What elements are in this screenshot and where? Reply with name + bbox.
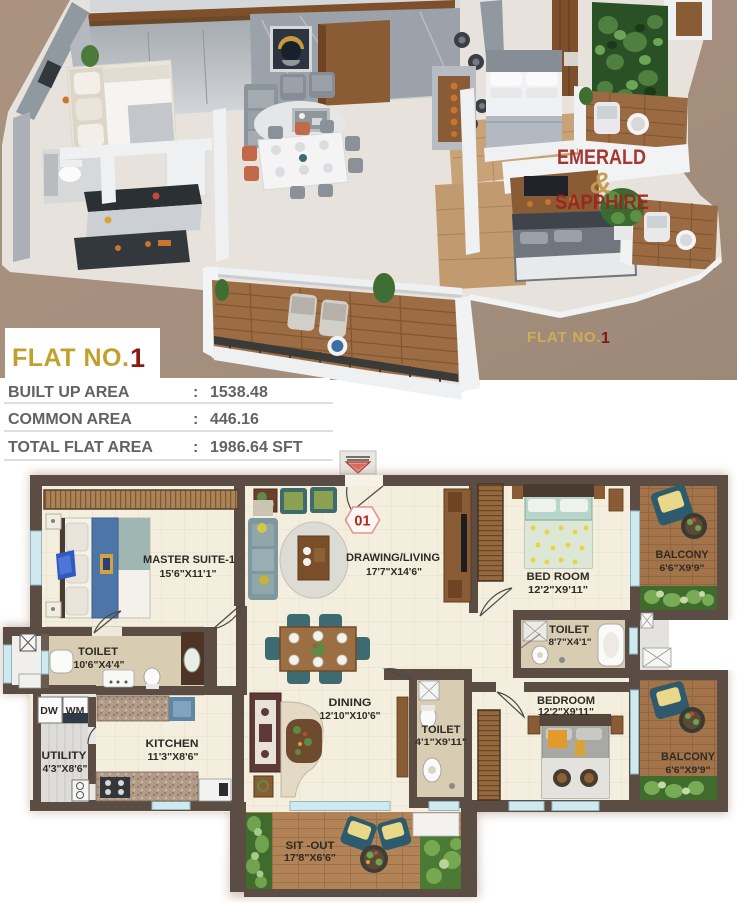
svg-text:15'6"X11'1": 15'6"X11'1": [160, 569, 217, 580]
svg-text:COMMON AREA: COMMON AREA: [8, 411, 132, 428]
svg-text:FLAT NO.: FLAT NO.: [527, 329, 601, 346]
svg-text:6'6"X9'9": 6'6"X9'9": [666, 765, 711, 776]
svg-text:DW: DW: [40, 705, 58, 717]
svg-text:BALCONY: BALCONY: [661, 751, 715, 763]
svg-text:4'1"X9'11": 4'1"X9'11": [415, 737, 467, 748]
svg-text:EMERALD: EMERALD: [557, 146, 646, 169]
svg-text:WM: WM: [66, 705, 85, 717]
svg-text:MASTER SUITE-1: MASTER SUITE-1: [143, 554, 235, 566]
svg-text:1986.64 SFT: 1986.64 SFT: [210, 439, 303, 456]
svg-text:BUILT UP AREA: BUILT UP AREA: [8, 384, 130, 401]
svg-text:KITCHEN: KITCHEN: [146, 738, 199, 750]
svg-text:8'7"X4'1": 8'7"X4'1": [549, 637, 592, 648]
svg-text:12'2"X9'11": 12'2"X9'11": [538, 707, 594, 718]
svg-text:17'8"X6'6": 17'8"X6'6": [284, 853, 336, 864]
svg-text:1538.48: 1538.48: [210, 384, 268, 401]
svg-text:6'6"X9'9": 6'6"X9'9": [660, 563, 705, 574]
svg-text:4'3"X8'6": 4'3"X8'6": [43, 764, 88, 775]
svg-text:FLAT NO.: FLAT NO.: [12, 344, 129, 372]
svg-text:TOILET: TOILET: [78, 646, 118, 658]
svg-text:12'2"X9'11": 12'2"X9'11": [528, 585, 588, 596]
svg-text:DRAWING/LIVING: DRAWING/LIVING: [346, 552, 440, 564]
svg-text:SIT -OUT: SIT -OUT: [286, 840, 335, 852]
svg-text::: :: [193, 439, 198, 456]
svg-text:1: 1: [601, 330, 610, 347]
svg-text:11'3"X8'6": 11'3"X8'6": [148, 752, 199, 763]
svg-text:SAPPHIRE: SAPPHIRE: [555, 191, 649, 214]
svg-text:TOTAL FLAT AREA: TOTAL FLAT AREA: [8, 439, 153, 456]
svg-text::: :: [193, 411, 198, 428]
svg-text:DINING: DINING: [329, 697, 372, 709]
svg-text:TOILET: TOILET: [549, 624, 589, 636]
svg-text::: :: [193, 384, 198, 401]
svg-text:BALCONY: BALCONY: [656, 549, 709, 561]
svg-text:12'10"X10'6": 12'10"X10'6": [320, 711, 381, 722]
svg-text:UTILITY: UTILITY: [42, 750, 88, 762]
svg-text:TOILET: TOILET: [422, 724, 461, 736]
svg-text:17'7"X14'6": 17'7"X14'6": [366, 567, 422, 578]
svg-text:10'6"X4'4": 10'6"X4'4": [74, 660, 125, 671]
svg-text:1: 1: [130, 343, 145, 373]
svg-text:BEDROOM: BEDROOM: [537, 695, 595, 707]
svg-text:01: 01: [354, 514, 370, 530]
svg-text:BED ROOM: BED ROOM: [527, 571, 590, 583]
svg-text:446.16: 446.16: [210, 411, 259, 428]
